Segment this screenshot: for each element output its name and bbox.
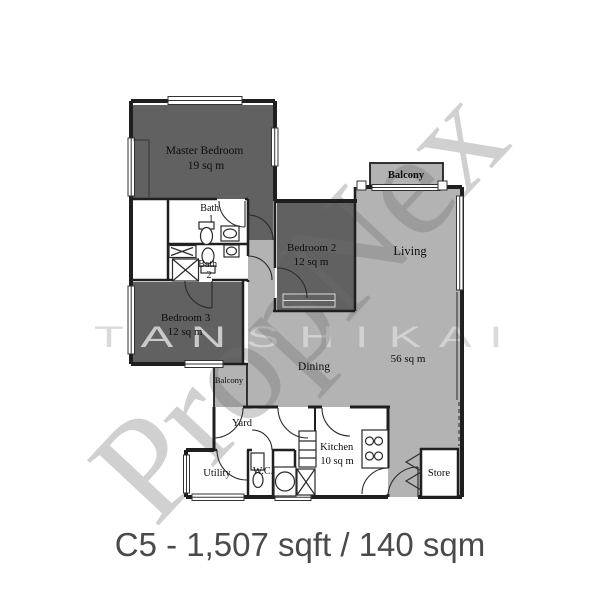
label-balcony-side: Balcony: [215, 375, 244, 385]
stove-burner-4: [375, 452, 383, 460]
stove-burner-1: [366, 437, 374, 445]
label-open-area: 56 sq m: [391, 353, 426, 365]
basin-bowl-bath2: [227, 247, 237, 255]
label-utility: Utility: [203, 468, 231, 479]
label-wc: W.C.: [253, 466, 273, 477]
label-living: Living: [393, 244, 427, 258]
stove-counter: [362, 430, 388, 468]
toilet-bowl-bath1: [201, 228, 213, 245]
floorplan-page: T A N S H I K A I PropNex: [0, 0, 600, 600]
floorplan-canvas: T A N S H I K A I PropNex: [0, 0, 600, 600]
sill-right: [438, 181, 447, 190]
stove-burner-2: [375, 437, 383, 445]
stove-burner-3: [366, 452, 374, 460]
basin-bowl-bath1: [224, 229, 237, 238]
kitchen-cabinet: [299, 431, 316, 467]
label-store: Store: [428, 468, 451, 479]
sill-left: [357, 181, 366, 190]
label-yard: Yard: [232, 418, 253, 429]
label-dining: Dining: [298, 361, 330, 373]
washer-drum: [276, 472, 295, 491]
label-balcony-top: Balcony: [388, 170, 425, 181]
unit-caption: C5 - 1,507 sqft / 140 sqm: [115, 526, 486, 563]
